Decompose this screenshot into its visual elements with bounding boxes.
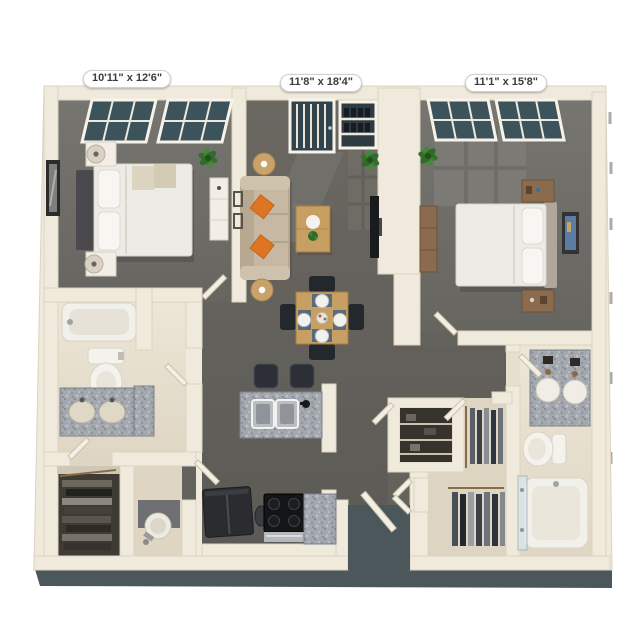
dresser [210, 178, 228, 240]
bar-stool [290, 364, 314, 388]
table-plant [308, 231, 318, 241]
balcony-door [290, 100, 334, 152]
sofa [240, 176, 292, 280]
bedroom-1-window-1 [82, 100, 156, 142]
bar-stool [254, 364, 278, 388]
nightstand [522, 180, 554, 202]
bathroom-2-door-threshold [506, 352, 520, 386]
bedroom-2-window-1 [428, 100, 496, 140]
bed-1-pillow [98, 212, 120, 250]
dimension-label-bedroom-2: 11'1" x 15'8" [465, 74, 547, 92]
refrigerator [202, 486, 253, 537]
hanging-clothes [470, 408, 503, 464]
kitchen-counter [304, 494, 336, 544]
bedroom-1-window-2 [158, 100, 232, 142]
bed-1-throw-blanket [132, 166, 154, 190]
floor-plan-rendering [0, 0, 640, 640]
vanity-cabinet [134, 386, 154, 436]
vanity-double-sink [60, 388, 134, 436]
bed-2-pillow [522, 248, 543, 284]
breakfast-bar [240, 392, 322, 438]
dining-chair [309, 276, 335, 292]
bed-1-headboard [76, 170, 94, 250]
dining-chair [280, 304, 296, 330]
floor-lamp [251, 279, 273, 301]
nightstand [522, 290, 554, 312]
toilet [523, 432, 566, 466]
double-sink [252, 400, 298, 428]
utility-door-threshold [182, 466, 196, 500]
glass-panel [518, 476, 527, 550]
floor-lamp [253, 153, 275, 175]
bathtub [62, 303, 136, 341]
table-lamp [87, 145, 105, 163]
bed-1-throw-blanket [154, 164, 176, 188]
dimension-label-living-room: 11'8" x 18'4" [280, 74, 362, 92]
floor-plan-image: 10'11" x 12'6" 11'8" x 18'4" 11'1" x 15'… [0, 0, 640, 640]
vanity-double-sink [530, 350, 590, 426]
pantry-closet [400, 408, 452, 462]
dimension-label-bedroom-1: 10'11" x 12'6" [83, 70, 171, 88]
living-window-shelf [340, 102, 376, 148]
bed-1-pillow [98, 170, 120, 208]
bedroom-2-window-2 [496, 100, 564, 140]
wall-art [46, 160, 60, 216]
range [264, 494, 304, 542]
dresser [420, 206, 437, 272]
wall-art [562, 212, 579, 254]
coffee-table [296, 206, 332, 255]
dining-chair [309, 344, 335, 360]
table-lamp [85, 255, 103, 273]
bed-2-pillow [522, 208, 543, 244]
bathtub-with-glass [518, 476, 588, 550]
dining-chair [348, 304, 364, 330]
